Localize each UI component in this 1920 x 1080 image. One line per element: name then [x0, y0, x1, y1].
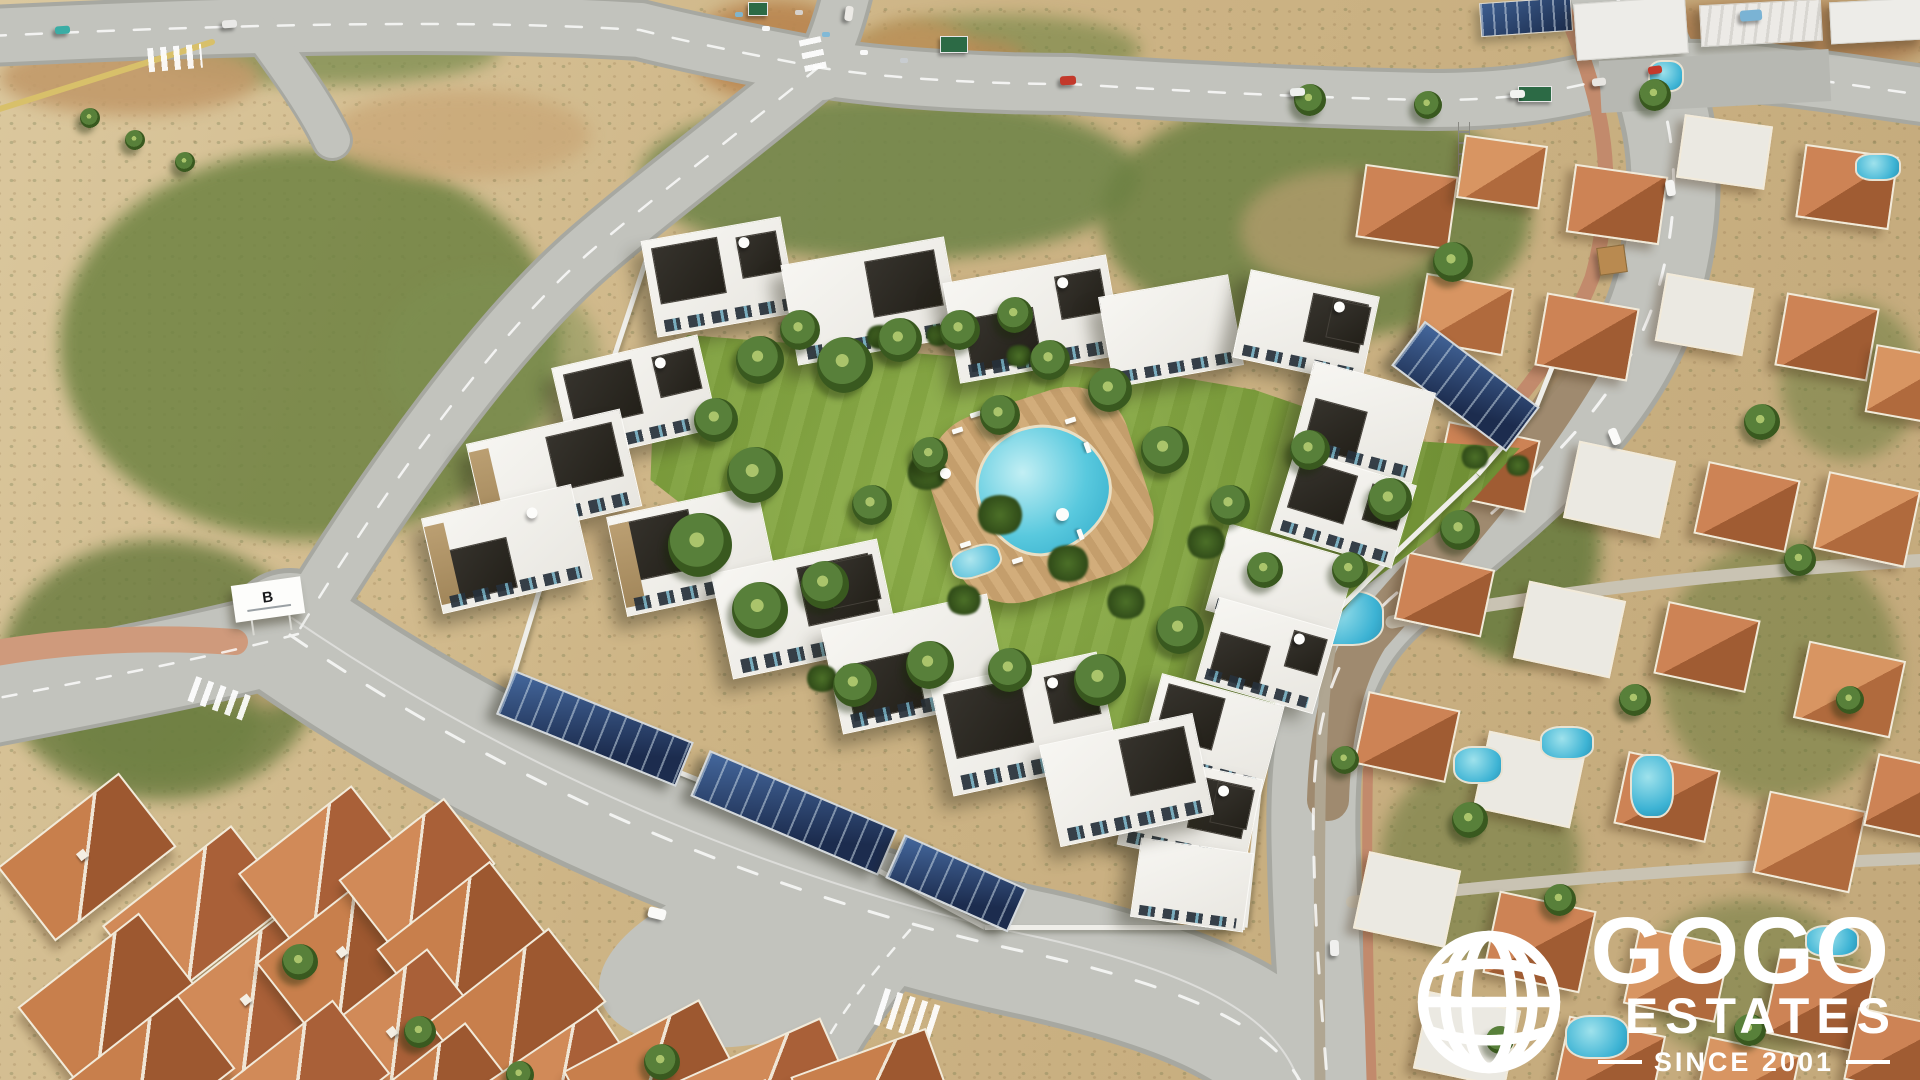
- car: [222, 19, 238, 28]
- billboard-leg: [288, 615, 292, 630]
- watermark-text: GOGO ESTATES SINCE 2001: [1590, 913, 1890, 1078]
- palm-tree: [912, 437, 948, 473]
- palm-tree: [736, 336, 784, 384]
- palm-tree: [1544, 884, 1576, 916]
- palm-tree: [1210, 485, 1250, 525]
- palm-tree: [852, 485, 892, 525]
- tagline-text: SINCE 2001: [1654, 1047, 1834, 1078]
- car: [55, 25, 71, 34]
- palm-tree: [1332, 552, 1368, 588]
- palm-tree: [1744, 404, 1780, 440]
- palm-tree: [980, 395, 1020, 435]
- palm-tree: [1156, 606, 1204, 654]
- billboard-logo: B: [261, 589, 274, 605]
- palm-tree: [1784, 544, 1816, 576]
- palm-tree: [1074, 654, 1126, 706]
- palm-tree: [1290, 430, 1330, 470]
- brand-name-top: GOGO: [1590, 913, 1890, 989]
- palm-tree: [906, 641, 954, 689]
- palm-tree: [1433, 242, 1473, 282]
- palm-tree: [668, 513, 732, 577]
- palm-tree: [878, 318, 922, 362]
- palm-tree: [1440, 510, 1480, 550]
- palm-tree: [1414, 91, 1442, 119]
- car: [1592, 77, 1607, 86]
- road-sign: [748, 2, 768, 16]
- construction-billboard: B: [231, 576, 305, 622]
- car: [1290, 88, 1305, 97]
- palm-tree: [1088, 368, 1132, 412]
- palm-tree: [404, 1016, 436, 1048]
- car: [647, 906, 667, 921]
- palm-tree: [644, 1044, 680, 1080]
- palm-tree: [817, 337, 873, 393]
- palm-tree: [506, 1061, 534, 1080]
- palm-tree: [997, 297, 1033, 333]
- car: [1060, 76, 1076, 86]
- palm-tree: [727, 447, 783, 503]
- globe-icon: [1414, 926, 1564, 1078]
- car: [1740, 9, 1763, 22]
- tagline-dash-right: [1846, 1060, 1890, 1064]
- palm-tree: [125, 130, 145, 150]
- palm-tree: [732, 582, 788, 638]
- road-sign: [940, 36, 968, 53]
- palm-tree: [833, 663, 877, 707]
- car: [1607, 427, 1622, 446]
- car: [1648, 65, 1663, 75]
- tagline-dash-left: [1598, 1060, 1642, 1064]
- palm-tree: [694, 398, 738, 442]
- palm-tree: [780, 310, 820, 350]
- palm-tree: [1247, 552, 1283, 588]
- car: [1330, 940, 1340, 956]
- palm-tree: [940, 310, 980, 350]
- palm-tree: [801, 561, 849, 609]
- brand-name-bottom: ESTATES: [1625, 989, 1897, 1044]
- palm-tree: [1368, 478, 1412, 522]
- watermark: GOGO ESTATES SINCE 2001: [1414, 913, 1890, 1078]
- palm-tree: [1452, 802, 1488, 838]
- palm-tree: [1619, 684, 1651, 716]
- billboard-leg: [251, 620, 255, 635]
- palm-tree: [1836, 686, 1864, 714]
- brand-tagline: SINCE 2001: [1598, 1047, 1890, 1078]
- palm-tree: [80, 108, 100, 128]
- aerial-photo: B GOGO ESTATES SINCE 2001: [0, 0, 1920, 1080]
- car: [1510, 90, 1525, 99]
- palm-tree: [1639, 79, 1671, 111]
- palm-tree: [1331, 746, 1359, 774]
- palm-tree: [175, 152, 195, 172]
- palm-tree: [1141, 426, 1189, 474]
- bus-shelter: [1596, 244, 1628, 276]
- palm-tree: [988, 648, 1032, 692]
- palm-tree: [282, 944, 318, 980]
- car: [844, 6, 854, 22]
- car: [1665, 179, 1677, 196]
- palm-tree: [1030, 340, 1070, 380]
